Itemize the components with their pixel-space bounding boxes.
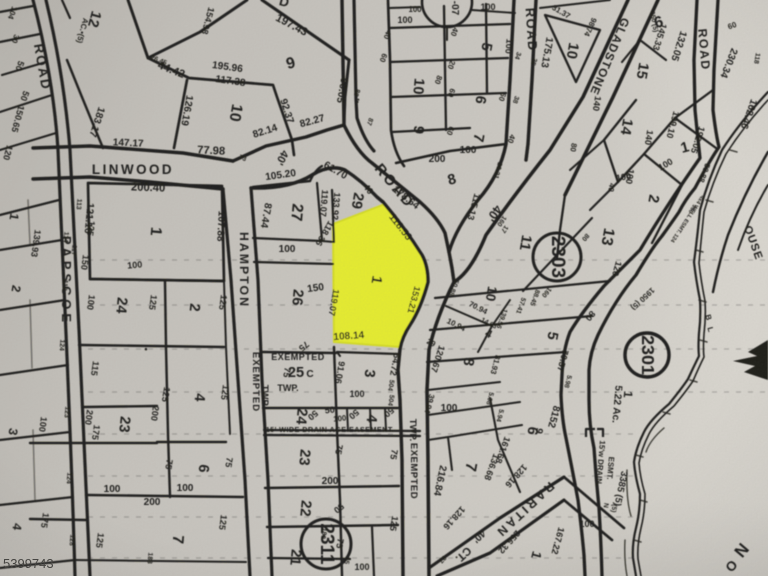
svg-text:5399743: 5399743 <box>3 556 54 571</box>
